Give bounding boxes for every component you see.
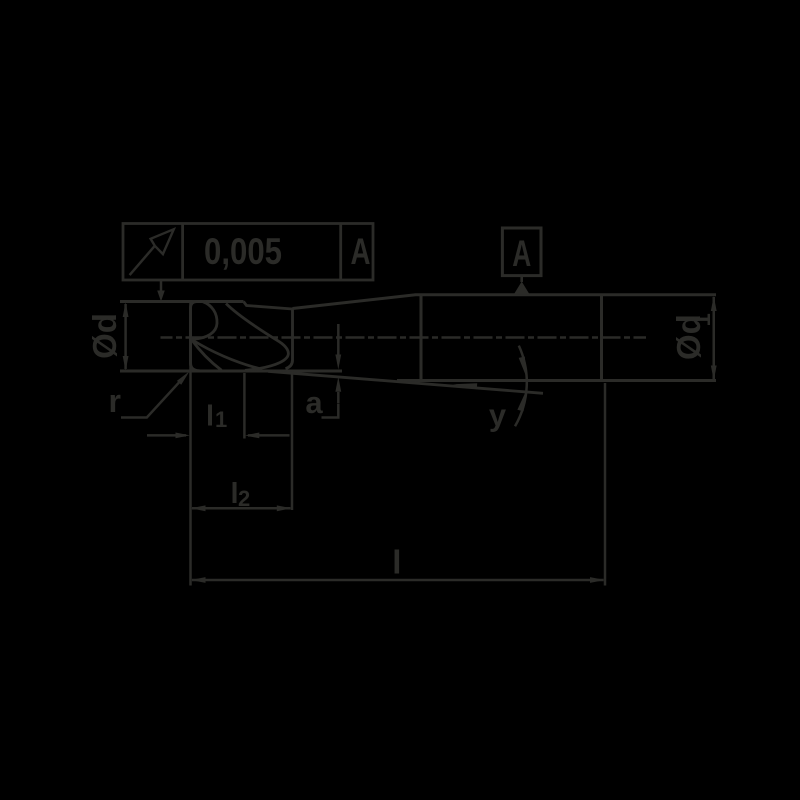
svg-text:A: A bbox=[351, 231, 371, 272]
svg-text:1: 1 bbox=[215, 407, 227, 432]
svg-text:A: A bbox=[512, 233, 531, 274]
svg-text:0,005: 0,005 bbox=[204, 231, 282, 272]
svg-text:y: y bbox=[489, 398, 507, 433]
svg-text:a: a bbox=[305, 385, 323, 420]
svg-text:Ød: Ød bbox=[86, 313, 123, 359]
svg-text:l: l bbox=[392, 544, 401, 581]
svg-text:1: 1 bbox=[689, 313, 716, 326]
svg-text:l: l bbox=[206, 401, 214, 433]
svg-text:2: 2 bbox=[238, 486, 250, 511]
svg-text:r: r bbox=[108, 383, 120, 419]
